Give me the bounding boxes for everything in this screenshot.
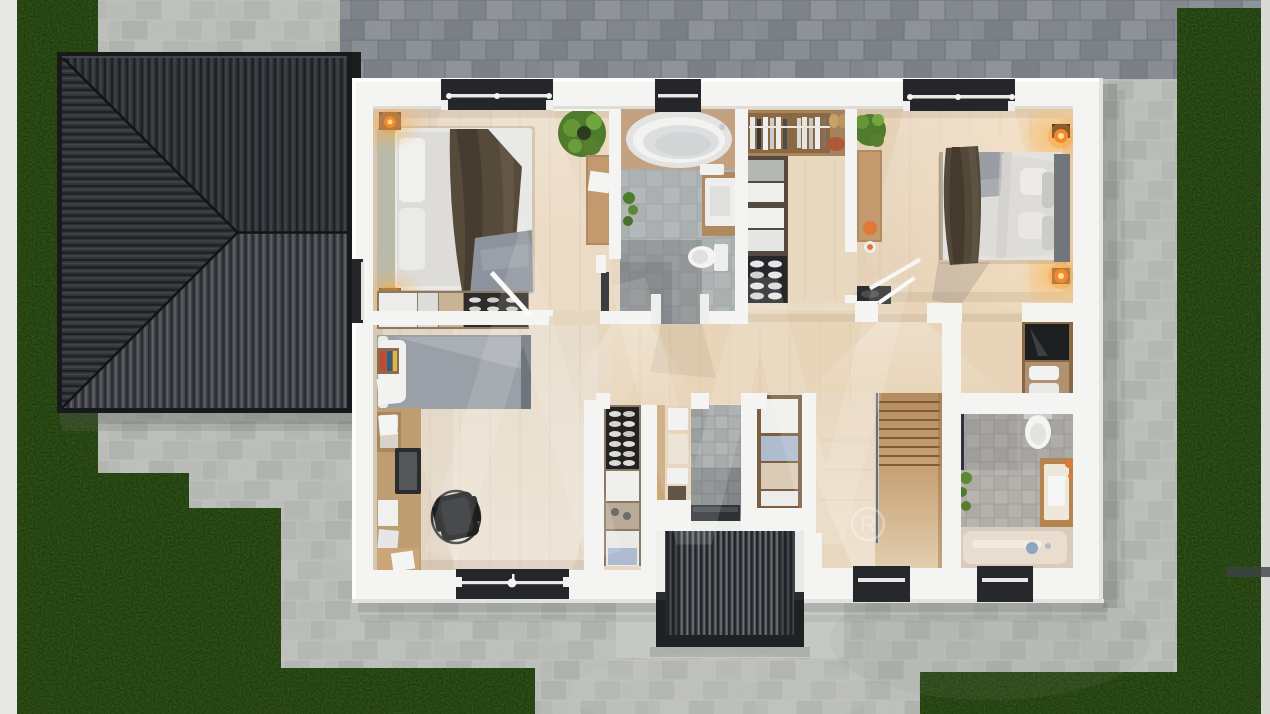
svg-text:R: R [860, 512, 876, 537]
